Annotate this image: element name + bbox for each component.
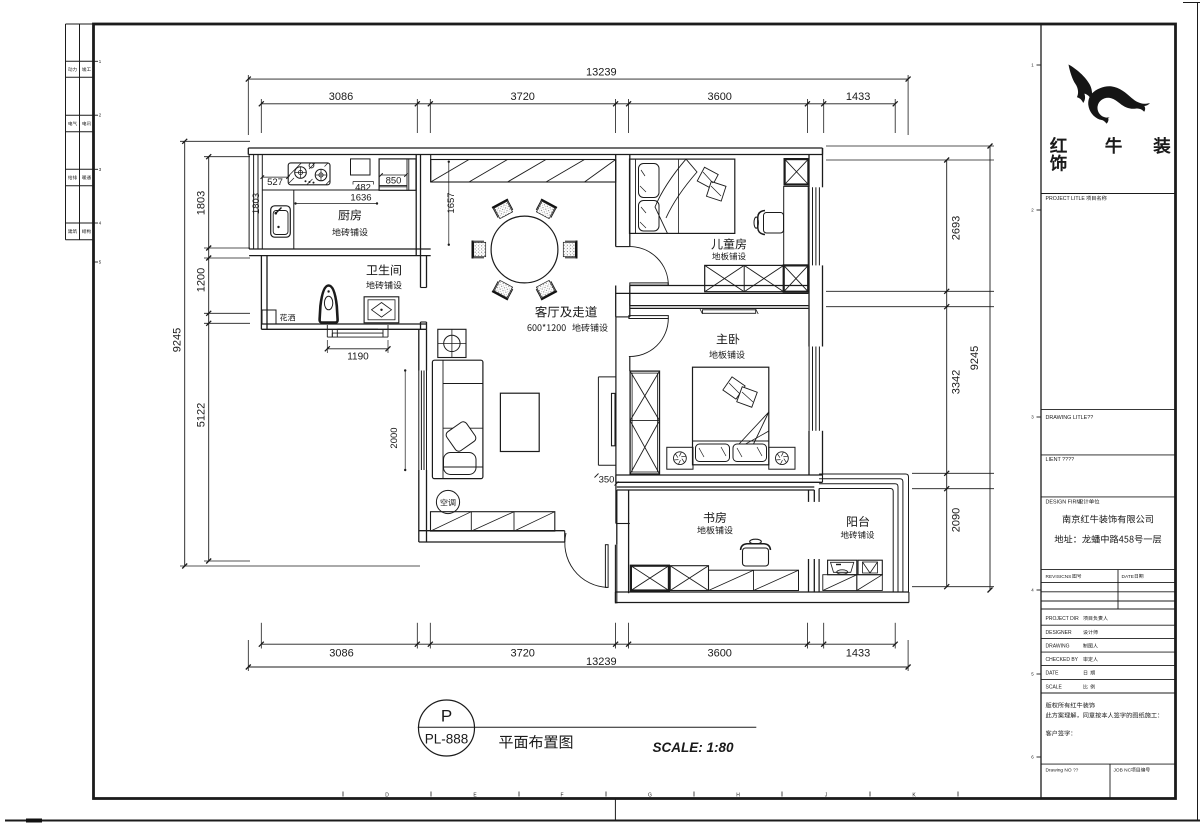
svg-text:DESIGNER: DESIGNER (1046, 630, 1073, 636)
svg-text:850: 850 (386, 176, 402, 187)
svg-text:1803: 1803 (196, 191, 208, 215)
svg-text:G: G (648, 793, 652, 799)
svg-text:13239: 13239 (586, 67, 617, 79)
svg-text:H: H (736, 793, 740, 799)
svg-text:PL-888: PL-888 (425, 732, 469, 747)
svg-text:DESIGN FIRM: DESIGN FIRM (1046, 500, 1082, 506)
svg-text:5: 5 (99, 260, 102, 265)
svg-text:DATE: DATE (1046, 671, 1060, 677)
svg-text:Drawing NO ??: Drawing NO ?? (1046, 768, 1079, 774)
svg-text:LIENT ????: LIENT ???? (1046, 457, 1075, 463)
svg-text:2000: 2000 (389, 427, 400, 448)
svg-text:3600: 3600 (707, 91, 731, 103)
svg-text:3600: 3600 (707, 648, 731, 660)
svg-text:1433: 1433 (846, 648, 870, 660)
svg-text:9245: 9245 (172, 328, 184, 352)
svg-text:3720: 3720 (510, 648, 534, 660)
svg-text:3086: 3086 (329, 648, 353, 660)
svg-text:5122: 5122 (196, 403, 208, 427)
svg-text:1: 1 (1031, 63, 1034, 68)
svg-text:527: 527 (267, 177, 283, 188)
svg-text:DRAWING: DRAWING (1046, 644, 1070, 650)
svg-text:1657: 1657 (446, 192, 457, 213)
svg-text:350: 350 (599, 475, 615, 486)
svg-text:2693: 2693 (951, 216, 963, 240)
svg-text:3342: 3342 (951, 370, 963, 394)
svg-text:1803: 1803 (251, 193, 262, 214)
svg-text:P: P (441, 707, 452, 726)
svg-text:13239: 13239 (586, 656, 617, 668)
svg-text:1: 1 (99, 59, 102, 64)
svg-text:3720: 3720 (510, 91, 534, 103)
svg-text:2: 2 (1031, 208, 1034, 213)
svg-text:JOB NC: JOB NC (1114, 768, 1132, 774)
svg-text:SCALE: SCALE (1046, 685, 1063, 691)
svg-text:REVISICNS: REVISICNS (1046, 574, 1072, 580)
svg-text:SCALE: 1:80: SCALE: 1:80 (652, 740, 734, 755)
svg-text:D: D (385, 793, 389, 799)
svg-text:PROJECT DIR: PROJECT DIR (1046, 616, 1080, 622)
svg-text:CHECKED BY: CHECKED BY (1046, 657, 1079, 663)
svg-text:2090: 2090 (951, 508, 963, 532)
svg-text:4: 4 (1031, 588, 1034, 593)
svg-text:1190: 1190 (347, 352, 369, 363)
svg-text:F: F (560, 793, 563, 799)
svg-text:1433: 1433 (846, 91, 870, 103)
svg-text:3: 3 (99, 167, 102, 172)
svg-text:DATE: DATE (1122, 574, 1134, 580)
svg-text:1200: 1200 (196, 268, 208, 292)
svg-text:3: 3 (1031, 415, 1034, 420)
svg-text:DRAWING LITLE??: DRAWING LITLE?? (1046, 415, 1094, 421)
svg-text:3086: 3086 (329, 91, 353, 103)
svg-text:9245: 9245 (969, 346, 981, 370)
svg-text:6: 6 (1031, 755, 1034, 760)
svg-text:4: 4 (99, 221, 102, 226)
svg-text:5: 5 (1031, 672, 1034, 677)
svg-text:2: 2 (99, 113, 102, 118)
svg-text:PROJECT LITLE: PROJECT LITLE (1046, 196, 1086, 202)
svg-text:1636: 1636 (350, 193, 371, 204)
